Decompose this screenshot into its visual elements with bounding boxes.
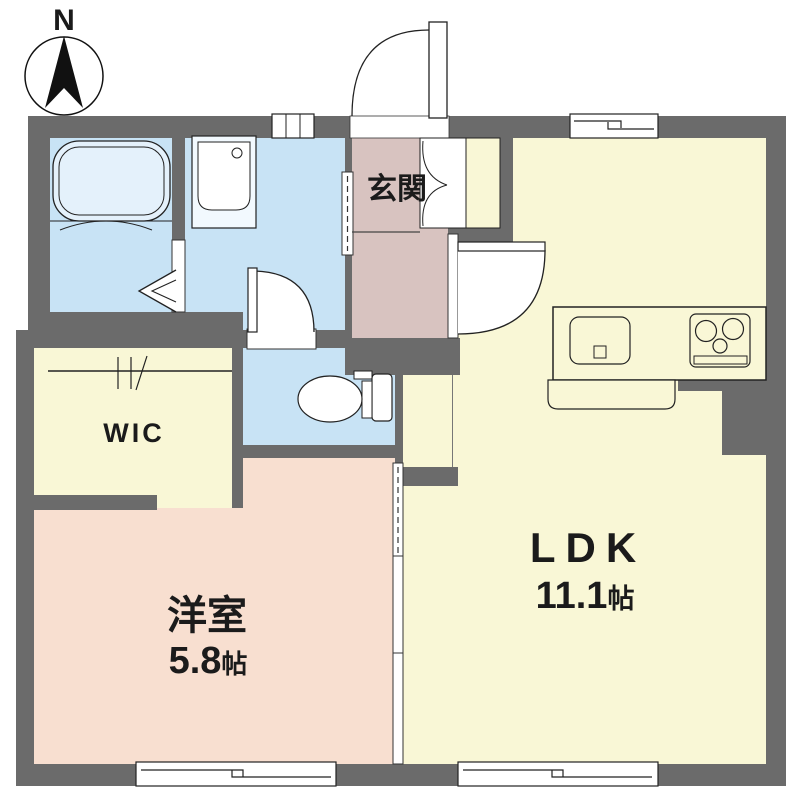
bathtub bbox=[50, 141, 172, 230]
door-leaf bbox=[458, 242, 545, 251]
toilet-bowl bbox=[298, 376, 362, 422]
ldk-area-unit: 帖 bbox=[607, 584, 634, 614]
toilet-seat-back bbox=[362, 381, 372, 418]
washbasin-faucet bbox=[232, 148, 242, 158]
toilet-tank bbox=[372, 374, 392, 421]
window-washroom-top bbox=[272, 114, 314, 138]
door-leaf bbox=[248, 268, 257, 332]
wall-kitchen-chunk-a bbox=[678, 380, 766, 391]
wall-bath-washroom bbox=[172, 138, 185, 242]
wall-left-lower bbox=[16, 330, 34, 786]
bathtub-outer bbox=[53, 141, 170, 221]
window-ldk-bottom bbox=[458, 762, 658, 786]
wall-toilet-left bbox=[232, 338, 243, 508]
window-frame bbox=[458, 762, 658, 786]
label-ldk: LDK bbox=[530, 524, 646, 571]
wall-toilet-bottom bbox=[232, 445, 403, 458]
window-frame bbox=[136, 762, 336, 786]
wall-wic-bottom bbox=[28, 495, 157, 510]
pocket-door-frame bbox=[342, 172, 353, 255]
wic-opening-floor bbox=[157, 495, 232, 508]
floor-plan: N 玄関 LDK 11.1帖 洋室 5.8帖 WIC bbox=[0, 0, 800, 800]
room-hallway-floor bbox=[352, 228, 448, 338]
washbasin bbox=[192, 136, 256, 228]
hall-ldk-opening bbox=[448, 234, 458, 338]
window-frame bbox=[272, 114, 314, 138]
wall-below-hallway bbox=[345, 338, 460, 375]
shoe-closet bbox=[420, 138, 500, 228]
entrance-door-leaf bbox=[429, 22, 447, 118]
entrance-opening bbox=[350, 116, 449, 138]
compass-label: N bbox=[53, 4, 75, 37]
toilet-flush-unit bbox=[354, 371, 372, 379]
label-western-room: 洋室 bbox=[167, 594, 247, 638]
ldk-area-value: 11.1 bbox=[536, 575, 608, 617]
shoe-closet-back bbox=[466, 138, 500, 228]
sliding-door-bedroom-ldk bbox=[393, 463, 403, 764]
pocket-door-washroom bbox=[342, 172, 353, 255]
label-wic: WIC bbox=[103, 418, 164, 448]
window-bedroom-bottom bbox=[136, 762, 336, 786]
counter-extension bbox=[548, 380, 675, 409]
window-ldk-top bbox=[570, 114, 658, 138]
wall-right bbox=[766, 116, 786, 786]
western-area-unit: 帖 bbox=[221, 649, 247, 679]
western-area-value: 5.8 bbox=[169, 640, 222, 682]
floor-plan-drawing: N 玄関 LDK 11.1帖 洋室 5.8帖 WIC bbox=[0, 0, 800, 800]
wall-bottom bbox=[16, 764, 786, 786]
wall-nook-bottom bbox=[395, 467, 458, 486]
wall-closet-right bbox=[500, 116, 513, 244]
wall-nook-left bbox=[395, 373, 403, 467]
label-genkan: 玄関 bbox=[367, 172, 427, 206]
wall-kitchen-chunk-b bbox=[722, 391, 766, 455]
window-frame bbox=[570, 114, 658, 138]
